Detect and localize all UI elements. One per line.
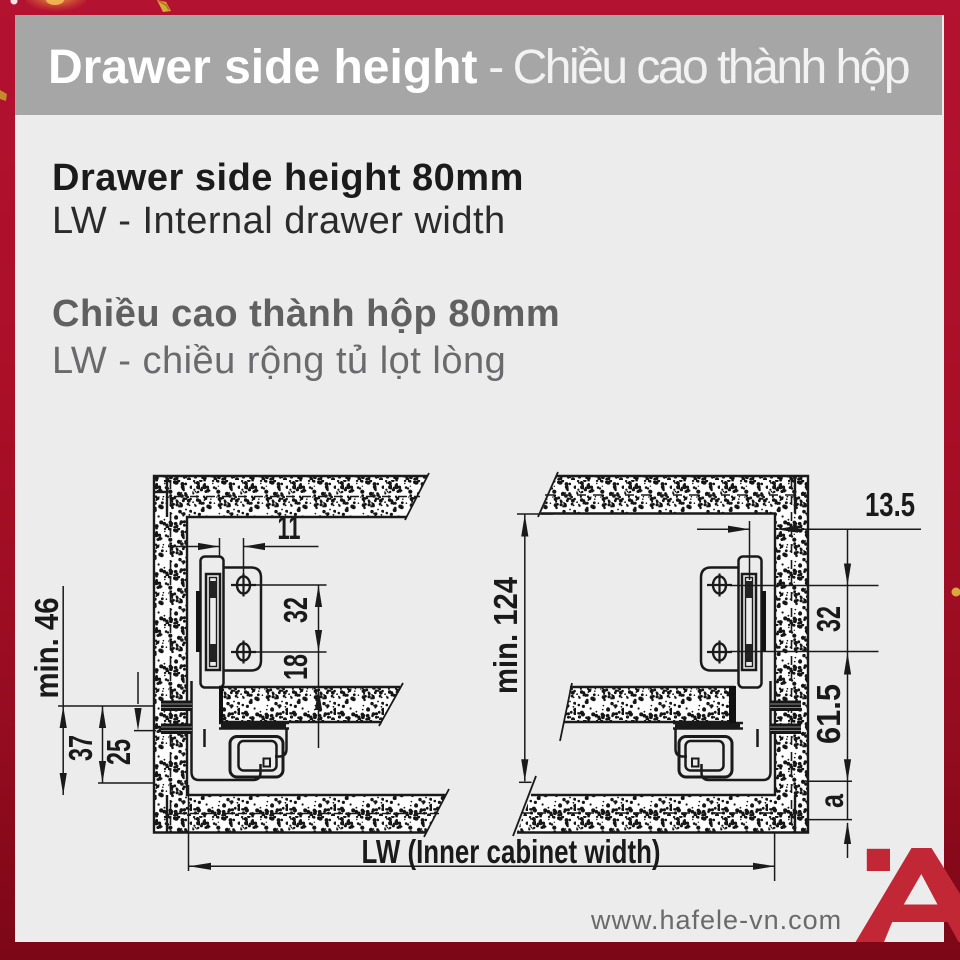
svg-text:min. 46: min. 46 [28,598,65,699]
svg-text:61.5: 61.5 [810,684,847,744]
svg-text:11: 11 [278,509,301,546]
svg-text:a: a [813,794,850,808]
svg-text:18: 18 [277,654,314,680]
svg-text:LW (Inner cabinet width): LW (Inner cabinet width) [362,833,661,870]
svg-text:13.5: 13.5 [865,486,915,523]
svg-text:min. 124: min. 124 [487,576,524,694]
svg-text:32: 32 [277,597,314,623]
svg-text:37: 37 [62,735,99,761]
svg-text:25: 25 [100,739,137,765]
svg-text:32: 32 [810,606,847,632]
